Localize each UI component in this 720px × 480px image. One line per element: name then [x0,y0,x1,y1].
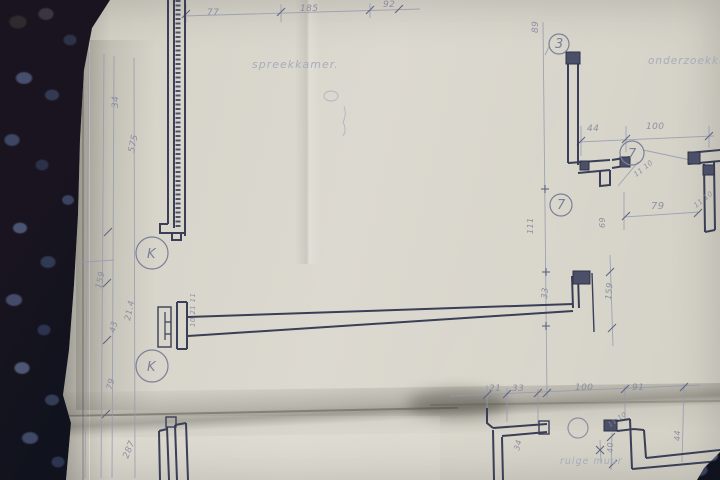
bubble-K: K [147,360,157,375]
paper-sheet: K K 3 7 7 spreekkamer. onderzoekkamer ru… [0,0,720,480]
photo-of-floor-plan: K K 3 7 7 spreekkamer. onderzoekkamer ru… [0,0,720,480]
floor-plan-drawing: K K 3 7 7 spreekkamer. onderzoekkamer ru… [0,0,720,480]
walls [158,0,720,480]
dim-label: 10 21 11 [189,293,197,327]
faint-scribble [324,91,345,136]
dim-label: 575 [127,134,141,154]
dim-label: 92 [383,0,395,10]
bubble-7: 7 [628,147,637,162]
dim-label: 77 [207,8,219,18]
dim-label: 43 [108,320,120,333]
dim-label: 34 [111,96,121,108]
wall-hatch-blocks [566,52,714,431]
note-ruige-muur: ruige muur [560,456,623,467]
room-label-spreekkamer: spreekkamer. [252,58,339,71]
dim-label: 111 [526,218,535,234]
dim-label: 34 [512,439,524,452]
dimension-lines [70,3,714,478]
dim-label: 79 [651,201,665,212]
dim-label: 21.4 [123,299,137,321]
dim-label: 91 [632,383,644,393]
dim-label: 40 [606,442,615,453]
dim-label: 69 [598,217,607,228]
dim-label: 33 [540,287,551,299]
dim-label: 100 [575,383,593,393]
dim-label: 185 [300,4,318,14]
dim-label: 21 [489,384,501,394]
dim-label: 79 [105,377,117,390]
bubble-7: 7 [557,198,566,213]
dim-label: 44 [673,430,682,441]
dim-label: 44 [587,124,599,134]
dim-label: 89 [531,21,541,33]
grid-bubble-letters: K K 3 7 7 [147,37,637,375]
dim-label: 159 [94,270,107,289]
bubble-K: K [147,247,157,262]
bubble-3: 3 [555,37,564,52]
dimension-labels: 77 185 92 89 34 575 44 100 79 11 10 11 1… [94,0,715,460]
dim-label: 159 [604,282,615,300]
room-label-onderzoekkamer: onderzoekkamer [648,55,720,67]
dim-label: 100 [646,122,664,132]
tick-marks [102,5,713,468]
dim-label: 33 [512,384,524,394]
